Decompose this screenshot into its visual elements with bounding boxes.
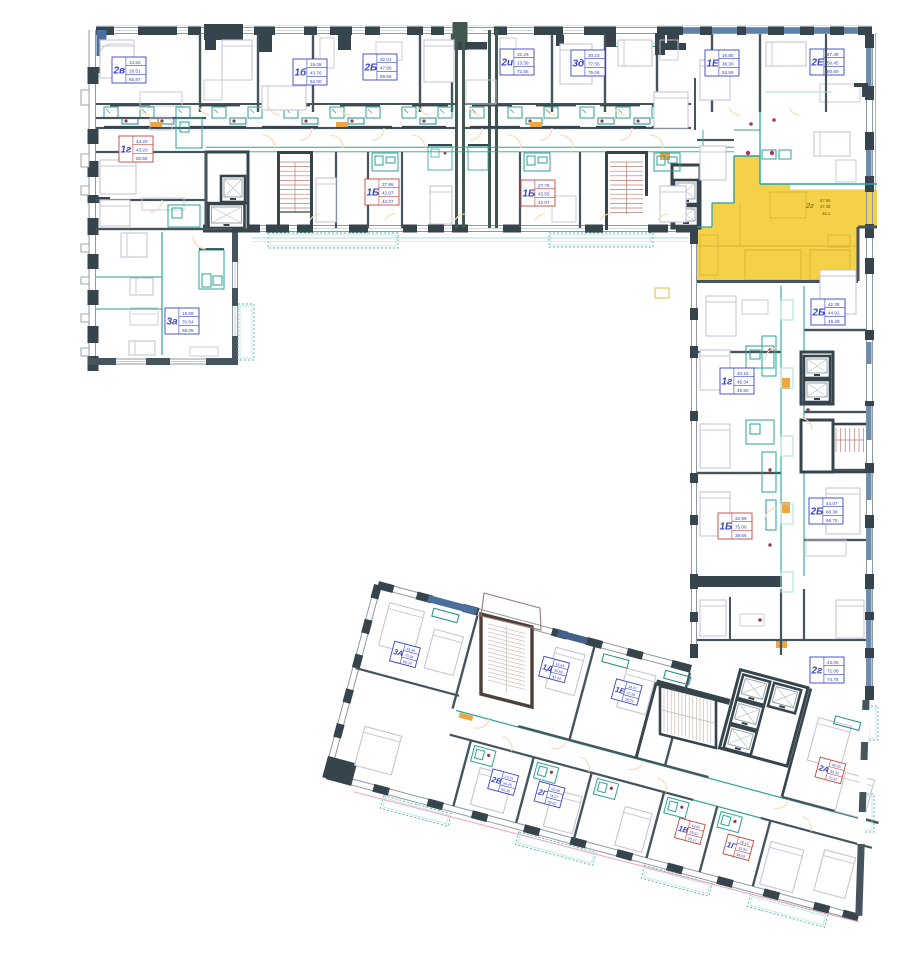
svg-text:2и: 2и bbox=[501, 58, 514, 69]
svg-text:2Б: 2Б bbox=[810, 507, 824, 518]
svg-text:42.07: 42.07 bbox=[538, 200, 550, 205]
svg-text:13.39: 13.39 bbox=[517, 61, 529, 66]
svg-text:47.66: 47.66 bbox=[380, 66, 392, 71]
svg-text:44.07: 44.07 bbox=[826, 501, 838, 506]
svg-text:1Б: 1Б bbox=[523, 189, 536, 200]
svg-text:70.54: 70.54 bbox=[182, 320, 194, 325]
svg-text:66.78: 66.78 bbox=[826, 518, 838, 523]
svg-text:47.35: 47.35 bbox=[820, 204, 831, 209]
svg-text:52.59: 52.59 bbox=[722, 70, 734, 75]
svg-text:45.34: 45.34 bbox=[737, 380, 749, 385]
svg-text:44.92: 44.92 bbox=[828, 311, 840, 316]
svg-text:42.38: 42.38 bbox=[828, 302, 840, 307]
svg-text:43.76: 43.76 bbox=[310, 71, 322, 76]
svg-text:27.76: 27.76 bbox=[538, 183, 550, 188]
svg-text:2г: 2г bbox=[805, 201, 814, 210]
svg-text:40.16: 40.16 bbox=[737, 371, 749, 376]
svg-text:2в: 2в bbox=[113, 66, 126, 77]
svg-text:80.69: 80.69 bbox=[827, 69, 839, 74]
svg-text:68.05: 68.05 bbox=[182, 328, 194, 333]
svg-text:1Е: 1Е bbox=[707, 59, 720, 70]
svg-text:1Б: 1Б bbox=[720, 522, 733, 533]
svg-text:42.07: 42.07 bbox=[382, 199, 394, 204]
svg-text:50.58: 50.58 bbox=[136, 156, 148, 161]
svg-text:74.78: 74.78 bbox=[827, 677, 839, 682]
svg-text:14.52: 14.52 bbox=[129, 60, 141, 65]
svg-text:18.51: 18.51 bbox=[129, 69, 141, 74]
svg-text:43.05: 43.05 bbox=[827, 660, 839, 665]
svg-text:38.30: 38.30 bbox=[722, 62, 734, 67]
svg-text:43.55: 43.55 bbox=[538, 192, 550, 197]
svg-text:50.45: 50.45 bbox=[827, 61, 839, 66]
svg-text:16.85: 16.85 bbox=[722, 53, 734, 58]
svg-text:2Б: 2Б bbox=[812, 308, 826, 319]
svg-text:3а: 3а bbox=[167, 317, 179, 328]
svg-text:2г: 2г bbox=[811, 666, 824, 677]
svg-text:2Е: 2Е bbox=[811, 58, 825, 69]
svg-text:75.06: 75.06 bbox=[588, 70, 600, 75]
svg-text:77.55: 77.55 bbox=[588, 62, 600, 67]
svg-text:1Б: 1Б bbox=[367, 188, 380, 199]
svg-text:68.38: 68.38 bbox=[826, 510, 838, 515]
svg-text:42.07: 42.07 bbox=[382, 191, 394, 196]
svg-text:32.29: 32.29 bbox=[517, 52, 529, 57]
svg-text:45.50: 45.50 bbox=[737, 388, 749, 393]
svg-text:47.39: 47.39 bbox=[827, 52, 839, 57]
svg-text:72.08: 72.08 bbox=[827, 669, 839, 674]
svg-text:75.06: 75.06 bbox=[735, 525, 747, 530]
svg-text:72.55: 72.55 bbox=[517, 69, 529, 74]
svg-text:1г: 1г bbox=[121, 145, 133, 156]
svg-text:1б: 1б bbox=[295, 67, 308, 79]
svg-text:30.23: 30.23 bbox=[588, 53, 600, 58]
svg-text:15.08: 15.08 bbox=[310, 62, 322, 67]
svg-text:43.20: 43.20 bbox=[136, 139, 148, 144]
svg-text:18.58: 18.58 bbox=[182, 311, 194, 316]
svg-text:2Б: 2Б bbox=[364, 63, 378, 74]
svg-text:57.66: 57.66 bbox=[820, 198, 831, 203]
svg-text:3д: 3д bbox=[573, 59, 585, 70]
svg-text:49.28: 49.28 bbox=[828, 319, 840, 324]
svg-text:32.99: 32.99 bbox=[735, 516, 747, 521]
svg-text:32.01: 32.01 bbox=[380, 57, 392, 62]
svg-text:62.00: 62.00 bbox=[310, 79, 322, 84]
svg-text:1г: 1г bbox=[722, 377, 734, 388]
svg-text:69.66: 69.66 bbox=[380, 74, 392, 79]
svg-text:43.20: 43.20 bbox=[136, 148, 148, 153]
svg-text:46.1: 46.1 bbox=[822, 211, 831, 216]
svg-text:37.88: 37.88 bbox=[382, 182, 394, 187]
svg-text:38.66: 38.66 bbox=[735, 533, 747, 538]
svg-text:65.87: 65.87 bbox=[129, 77, 141, 82]
